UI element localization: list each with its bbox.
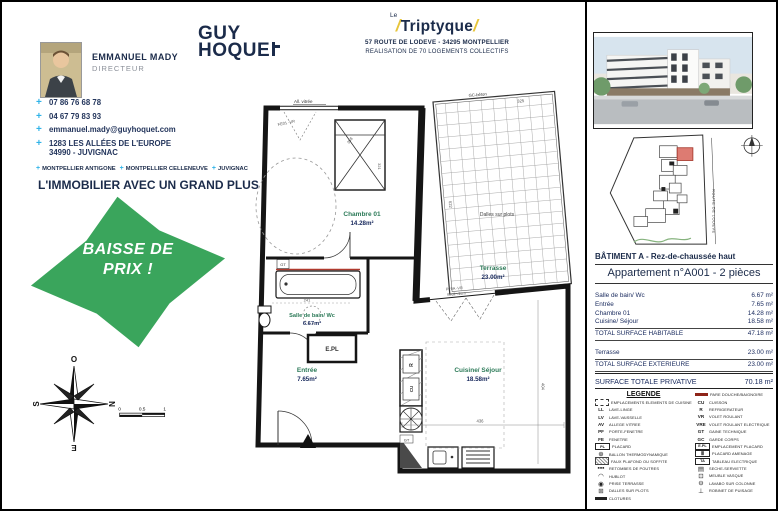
surface-value: 23.00 m² [748,349,773,358]
fence-icon [595,497,607,500]
legend-label: FENETRE [609,437,628,442]
logo-cross-icon [270,42,280,56]
room-label-cuisine: Cuisine/ Séjour [454,367,502,374]
room-label-entree: Entrée [297,367,318,374]
project-name: /Triptyque/ [312,16,562,36]
project-subtitle: REALISATION DE 70 LOGEMENTS COLLECTIFS [312,49,562,55]
surface-value: 6.67 m² [751,292,773,301]
french-window-icon: PF [595,429,607,435]
svg-text:6.67m²: 6.67m² [303,320,321,327]
legend-label: LAVE-VAISSELLE [609,415,642,420]
vanity-unit-icon: ⊡ [695,473,707,479]
agent-role: DIRECTEUR [92,64,145,73]
surface-label: Entrée [595,301,614,310]
dishwasher-icon: LV [595,414,607,420]
svg-text:1: 1 [163,407,166,413]
agency-name: JUVIGNAC [218,166,248,172]
legend-label: SECHE-SERVIETTE [709,466,747,471]
surface-label: Salle de bain/ Wc [595,292,645,301]
cooktop-icon: CU [695,399,707,405]
total-exterieure-row: TOTAL SURFACE EXTERIEURE23.00 m² [595,361,773,370]
technical-duct-icon: GT [695,429,707,435]
fitted-closet-icon: ≣ [695,450,710,457]
legend-label: BALLON THERMODYNAMIQUE [609,452,668,457]
legend-label: PORTE-FENETRE [609,429,643,434]
scale-bar: 0 0.5 1 [117,404,169,424]
svg-text:436: 436 [477,419,485,424]
beam-drop-icon: ▪▪▪ [595,466,607,472]
legend-label: PLACARD AMENAGE [712,451,752,456]
legend-item: ⊡ MEUBLE VASQUE [695,472,777,479]
legend: LEGENDE EMPLACEMENTS ELEMENTS DE CUISINE… [595,391,777,502]
surface-value: 18.58 m² [748,318,773,327]
room-label-terrasse: Terrasse [480,265,507,272]
legend-item: CLOTURES [595,495,692,502]
surface-row: Cuisine/ Séjour 18.58 m² [595,318,773,327]
legend-label: TABLEAU ELECTRIQUE [712,459,757,464]
legend-item: ▪▪▪ RETOMBES DE POUTRES [595,465,692,472]
plus-address-icon: + [36,139,49,148]
heat-pump-boiler-icon: ⊕ [595,451,607,457]
legend-item: FAUX PLAFOND OU SOFFITE [595,458,692,465]
legend-item: ◉ PRISE TERRASSE [595,480,692,487]
legend-label: RETOMBES DE POUTRES [609,466,659,471]
floor-plan: GC-béton 325 622 All. vitrée PF0A -VR Se… [250,88,580,496]
terrace: GC-béton 325 622 [432,88,571,294]
svg-text:CU: CU [409,386,414,393]
svg-text:R: R [409,363,415,367]
legend-label: LAVABO SUR COLONNE [709,481,755,486]
apartment-title: Appartement n°A001 - 2 pièces [595,265,773,284]
legend-item: LL LAVE-LINGE [595,406,692,413]
contact-text: emmanuel.mady@guyhoquet.com [49,125,176,135]
toilet [258,306,271,327]
agent-name: EMMANUEL MADY [92,52,178,62]
kitchen-elements-icon [595,399,609,406]
agency-name: MONTPELLIER CELLENEUVE [126,166,208,172]
plus-phone-icon: + [36,112,49,121]
contact-row: + 04 67 79 83 93 [36,112,251,122]
glazed-sill-icon: AV [595,421,607,427]
legend-item: R REFRIGERATEUR [695,406,777,413]
legend-label: PRISE TERRASSE [609,481,644,486]
svg-text:622: 622 [448,201,454,209]
legend-item: ≣ PLACARD AMENAGE [695,450,777,457]
legend-item: VR VOLET ROULANT [695,413,777,420]
svg-text:0.5: 0.5 [139,407,146,413]
legend-item: E.PL EMPLACEMENT PLACARD [695,443,777,450]
legend-item: GC GARDE CORPS [695,435,777,442]
legend-label: EMPLACEMENTS ELEMENTS DE CUISINE [611,400,692,405]
legend-label: HUBLOT [609,474,625,479]
legend-label: CUISSON [709,400,727,405]
legend-item: CU CUISSON [695,398,777,405]
price-drop-text: BAISSE DE PRIX ! [28,240,228,280]
surface-row: Entrée 7.65 m² [595,301,773,310]
contact-row: + 07 86 76 68 78 [36,98,251,108]
legend-label: MEUBLE VASQUE [709,473,743,478]
surface-label: Terrasse [595,349,620,358]
agency-list: + MONTPELLIER ANTIGONE + MONTPELLIER CEL… [36,165,266,172]
legend-item: PL PLACARD [595,443,692,450]
plus-icon: + [212,165,216,172]
legend-label: PLACARD [612,444,631,449]
svg-text:E: E [71,443,77,452]
svg-text:325: 325 [517,98,525,104]
legend-label: REFRIGERATEUR [709,407,743,412]
building-photo [593,32,753,129]
svg-text:E.PL: E.PL [325,347,339,353]
svg-text:GT: GT [280,262,286,267]
contact-row: + 1283 LES ALLÉES DE L'EUROPE 34990 - JU… [36,139,251,158]
slash-icon: / [473,16,478,35]
site-plan: ROUTE DE LODEVE [603,132,771,250]
legend-item: ⊥ ROBINET DE PUISAGE [695,487,777,494]
false-ceiling-icon [595,457,609,465]
svg-text:18.58m²: 18.58m² [466,376,489,383]
plus-icon: + [120,165,124,172]
contact-list: + 07 86 76 68 78 + 04 67 79 83 93 + emma… [36,98,251,158]
road-label: ROUTE DE LODEVE [712,189,717,234]
contact-text: 04 67 79 83 93 [49,112,101,122]
legend-item: GT GAINE TECHNIQUE [695,428,777,435]
porthole-icon: ◠ [595,473,607,479]
panel-divider [585,2,587,509]
legend-item: EMPLACEMENTS ELEMENTS DE CUISINE [595,399,692,406]
window-label: All. vitrée [294,99,313,104]
svg-text:GT: GT [404,438,410,443]
legend-item: PARE DOUCHE/BAIGNOIRE [695,391,777,398]
legend-item: PF PORTE-FENETRE [595,428,692,435]
room-label-bain: Salle de bain/ Wc [289,313,335,319]
bathtub [276,270,360,299]
plus-icon: + [36,165,40,172]
legend-label: GARDE CORPS [709,437,739,442]
surface-row: Salle de bain/ Wc 6.67 m² [595,292,773,301]
guy-hoquet-logo: GUY HOQUE [198,26,280,59]
legend-label: VOLET ROULANT [709,414,743,419]
bedroom-closet: 358 321 [335,120,385,190]
legend-label: FAUX PLAFOND OU SOFFITE [611,459,667,464]
legend-title: LEGENDE [595,391,692,399]
project-header: Le /Triptyque/ 57 ROUTE DE LODEVE - 3429… [312,12,562,76]
legend-item: VRE VOLET ROULANT ELECTRIQUE [695,421,777,428]
fridge-icon: R [695,406,707,412]
legend-item: AV ALLEGE VITREE [595,421,692,428]
roller-shutter-icon: VR [695,414,707,420]
legend-label: GAINE TECHNIQUE [709,429,747,434]
legend-item: ⊖ LAVABO SUR COLONNE [695,480,777,487]
svg-text:N: N [107,401,116,407]
legend-item: ◠ HUBLOT [595,473,692,480]
agency-item: + MONTPELLIER ANTIGONE [36,165,116,172]
washing-machine-icon: LL [595,407,607,413]
svg-text:23.00m²: 23.00m² [481,274,504,281]
legend-item: ⊞ DALLES SUR PLOTS [595,487,692,494]
agency-name: MONTPELLIER ANTIGONE [42,166,116,172]
flyer-page: EMMANUEL MADY DIRECTEUR + 07 86 76 68 78… [0,0,778,511]
site-compass-icon [741,135,763,157]
slabs-icon: ⊞ [595,488,607,494]
svg-text:0: 0 [118,407,121,413]
plus-mail-icon: + [36,125,49,134]
total-privative-row: SURFACE TOTALE PRIVATIVE70.18 m² [595,373,773,389]
svg-text:GC-béton: GC-béton [468,91,487,98]
pedestal-sink-icon: ⊖ [695,480,707,486]
closet-space-icon: E.PL [695,443,710,450]
outdoor-tap-icon: ⊥ [695,488,707,494]
highlighted-unit [677,148,693,161]
dalles-label: Dalles sur plots [480,212,515,218]
legend-item: LV LAVE-VAISSELLE [595,413,692,420]
slogan: L'IMMOBILIER AVEC UN GRAND PLUS [38,178,259,192]
legend-label: VOLET ROULANT ELECTRIQUE [709,422,770,427]
legend-item: ▤ SECHE-SERVIETTE [695,465,777,472]
legend-label: DALLES SUR PLOTS [609,488,649,493]
total-habitable-row: TOTAL SURFACE HABITABLE47.18 m² [595,330,773,339]
svg-text:14.28m²: 14.28m² [350,220,373,227]
guardrail-icon: GC [695,436,707,442]
surface-row: Chambre 01 14.28 m² [595,310,773,319]
agency-item: + MONTPELLIER CELLENEUVE [120,165,208,172]
contact-row: + emmanuel.mady@guyhoquet.com [36,125,251,135]
shower-screen-icon [695,393,708,396]
legend-label: ROBINET DE PUISAGE [709,488,753,493]
surface-table: Salle de bain/ Wc 6.67 m² Entrée 7.65 m²… [595,292,773,373]
surface-label: Chambre 01 [595,310,630,319]
contact-text: 07 86 76 68 78 [49,98,101,108]
compass-rose-icon: O N E S [32,354,116,454]
surface-row: Terrasse 23.00 m² [595,349,773,358]
contact-text: 1283 LES ALLÉES DE L'EUROPE [49,139,171,149]
agency-item: + JUVIGNAC [212,165,248,172]
svg-text:S: S [32,401,41,407]
contact-text-2: 34990 - JUVIGNAC [49,148,171,158]
svg-text:404: 404 [541,383,546,391]
terrace-socket-icon: ◉ [595,481,607,487]
plus-phone-icon: + [36,98,49,107]
window-icon: FE [595,436,607,442]
project-address: 57 ROUTE DE LODEVE - 34295 MONTPELLIER [312,39,562,46]
legend-label: LAVE-LINGE [609,407,633,412]
legend-label: ALLEGE VITREE [609,422,641,427]
legend-item: ⊕ BALLON THERMODYNAMIQUE [595,450,692,457]
legend-item: FE FENETRE [595,436,692,443]
surface-value: 14.28 m² [748,310,773,319]
legend-label: EMPLACEMENT PLACARD [712,444,763,449]
legend-label: PARE DOUCHE/BAIGNOIRE [710,392,763,397]
project-le: Le [390,12,397,19]
agent-photo [40,42,82,98]
legend-label: CLOTURES [609,496,631,501]
surface-label: Cuisine/ Séjour [595,318,638,327]
legend-item: TA TABLEAU ELECTRIQUE [695,458,777,465]
building-title: BÂTIMENT A - Rez-de-chaussée haut [595,252,773,265]
svg-text:O: O [71,355,77,364]
surface-value: 7.65 m² [751,301,773,310]
svg-text:321: 321 [377,163,382,170]
towel-dryer-icon: ▤ [695,466,707,472]
svg-text:241: 241 [304,298,311,303]
room-label-chambre: Chambre 01 [343,211,381,218]
svg-text:7.65m²: 7.65m² [297,376,317,383]
electric-shutter-icon: VRE [695,421,707,427]
